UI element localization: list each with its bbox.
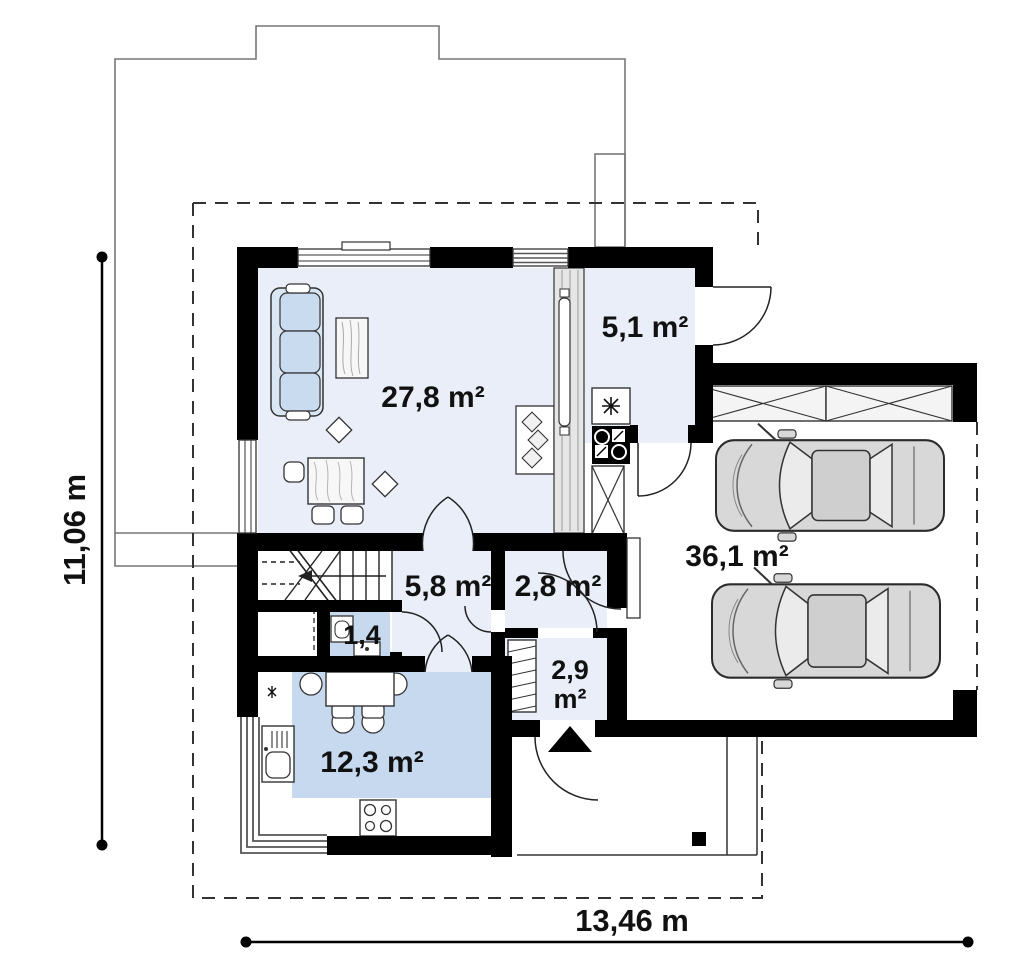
vestibule-label-unit: m²	[554, 684, 587, 714]
car-icon	[716, 424, 944, 541]
window-icon	[298, 242, 430, 266]
sink-icon	[262, 726, 294, 782]
height-dimension-label: 11,06 m	[57, 474, 92, 586]
garage-wardrobes	[700, 386, 952, 421]
doormat-icon	[692, 832, 706, 846]
dimension-line-vertical: 11,06 m	[57, 252, 108, 851]
wc-label: 1,4	[343, 620, 381, 650]
width-dimension-label: 13,46 m	[575, 903, 689, 938]
boiler-room-label: 5,1 m²	[602, 311, 689, 344]
porch	[517, 726, 757, 855]
coffee-table-icon	[336, 318, 368, 378]
living-room-label: 27,8 m²	[381, 381, 484, 414]
stairs-icon	[262, 548, 392, 603]
dimension-line-horizontal: 13,46 m	[241, 903, 974, 948]
car-icon	[712, 567, 940, 688]
window-icon	[239, 440, 256, 533]
kitchen-label: 12,3 m²	[320, 746, 423, 779]
window-icon	[513, 249, 568, 266]
boiler-icon	[592, 388, 630, 424]
door-arc	[638, 443, 691, 496]
garage-label: 36,1 m²	[685, 540, 788, 573]
door-arc	[713, 287, 771, 345]
vestibule-label-value: 2,9	[551, 655, 589, 685]
floor-plan-svg: 27,8 m² 5,1 m² 5,8 m² 2,8 m² 1,4 2,9 m² …	[0, 0, 1024, 980]
boiler-room-fixtures	[592, 388, 630, 534]
hall-label: 5,8 m²	[405, 570, 492, 603]
plant-shelf-icon	[516, 406, 554, 474]
sofa-icon	[271, 284, 323, 420]
chimney-strip	[554, 268, 584, 533]
entrance-arrow-icon	[548, 726, 592, 752]
corridor-label: 2,8 m²	[515, 570, 602, 603]
chimney-outline	[595, 154, 625, 247]
floor-plan-page: 27,8 m² 5,1 m² 5,8 m² 2,8 m² 1,4 2,9 m² …	[0, 0, 1024, 980]
wardrobe-icon	[508, 640, 536, 712]
tall-cabinet-icon	[592, 466, 624, 534]
hob-counter-icon	[592, 426, 630, 464]
counter-mark-icon	[268, 686, 276, 698]
stove-icon	[360, 800, 396, 836]
